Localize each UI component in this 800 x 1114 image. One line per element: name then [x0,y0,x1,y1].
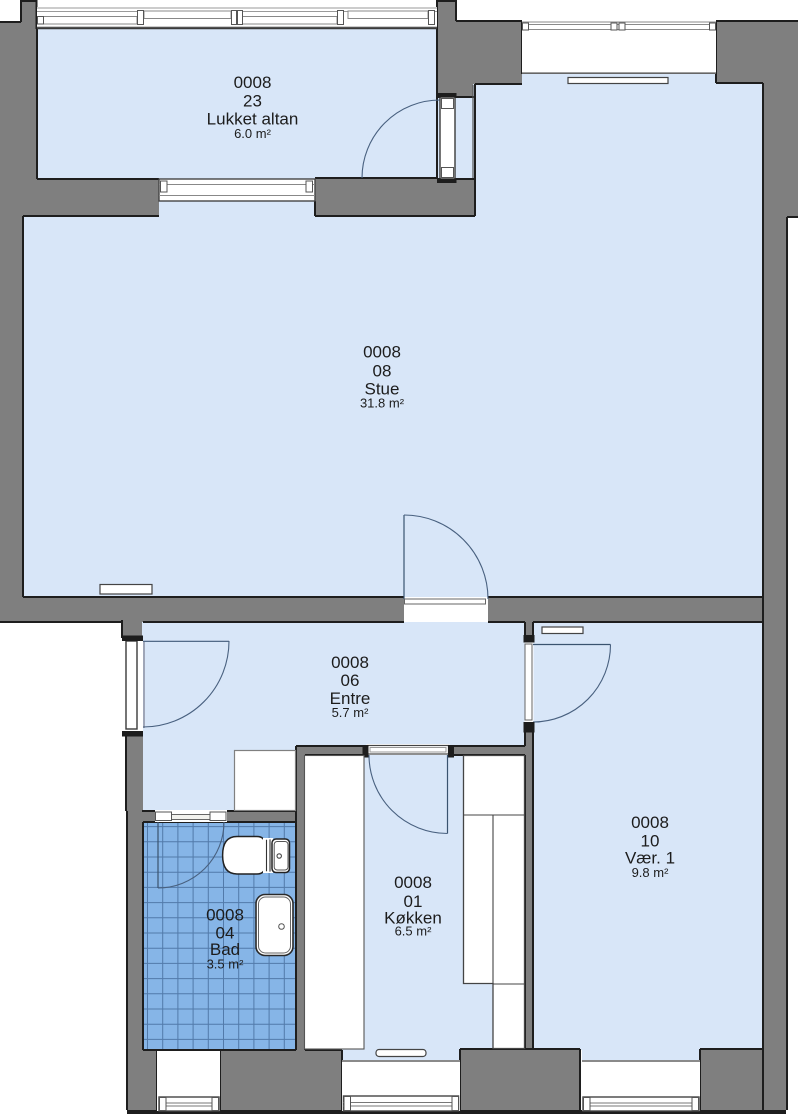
svg-text:5.7 m²: 5.7 m² [332,705,370,720]
svg-text:23: 23 [243,92,262,111]
svg-text:0008: 0008 [234,73,272,92]
svg-text:0008: 0008 [631,813,669,832]
svg-text:6.5 m²: 6.5 m² [395,924,433,939]
svg-text:0008: 0008 [206,906,244,925]
svg-text:0008: 0008 [363,343,401,362]
svg-text:3.5 m²: 3.5 m² [207,957,245,972]
svg-text:6.0 m²: 6.0 m² [234,126,272,141]
svg-text:31.8 m²: 31.8 m² [360,396,405,411]
svg-text:06: 06 [341,671,360,690]
svg-text:9.8 m²: 9.8 m² [632,865,670,880]
svg-text:0008: 0008 [394,873,432,892]
svg-text:08: 08 [373,362,392,381]
svg-text:0008: 0008 [331,653,369,672]
